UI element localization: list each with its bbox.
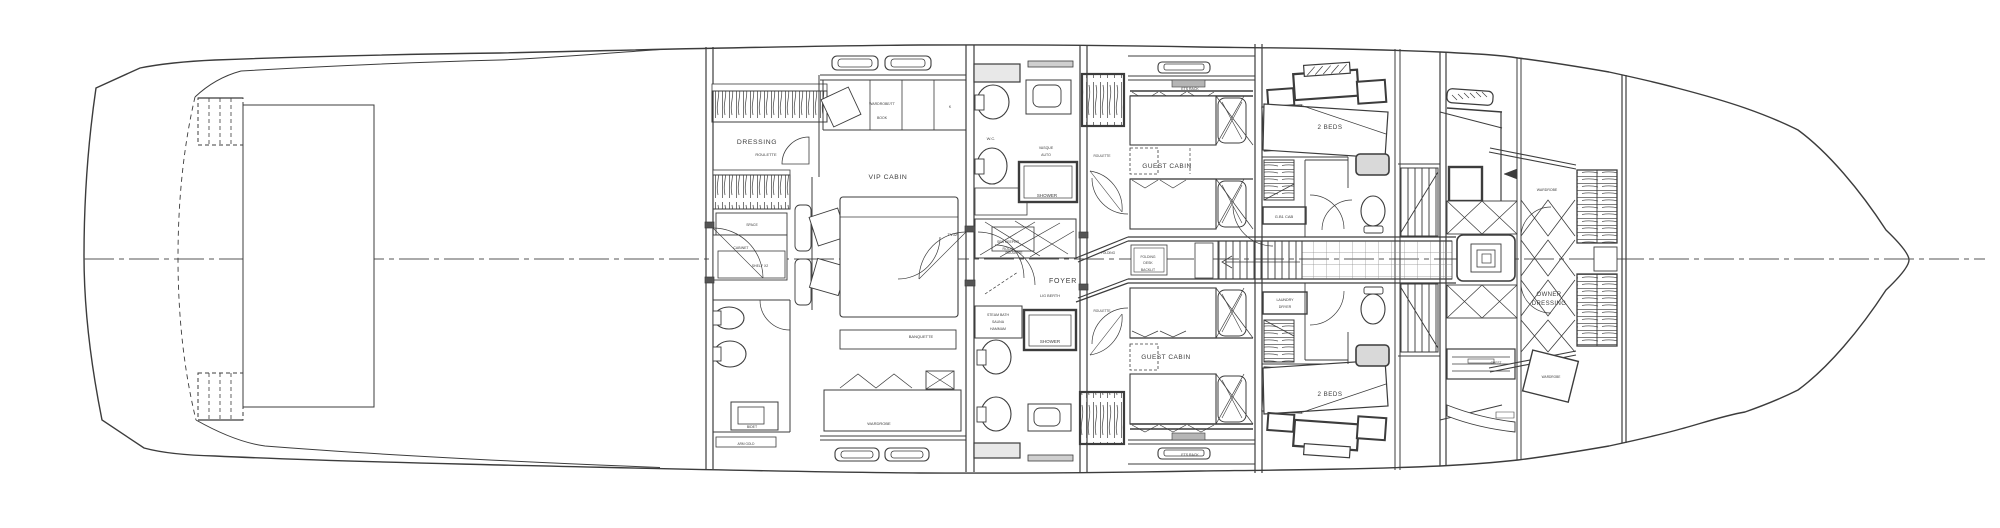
svg-text:FOLDING: FOLDING xyxy=(1140,255,1155,259)
svg-text:WARDROBE/TT: WARDROBE/TT xyxy=(869,102,896,106)
svg-text:FOYER: FOYER xyxy=(1049,278,1077,285)
svg-text:VIP CABIN: VIP CABIN xyxy=(869,174,908,181)
svg-text:STEAM BATH: STEAM BATH xyxy=(987,313,1010,317)
svg-text:ROULETTE: ROULETTE xyxy=(1005,251,1022,255)
svg-text:SPACE: SPACE xyxy=(746,223,758,227)
svg-text:GUEST CABIN: GUEST CABIN xyxy=(1141,354,1190,361)
svg-text:SHOWER: SHOWER xyxy=(1037,193,1058,198)
svg-text:SEA KEEPER: SEA KEEPER xyxy=(997,240,1019,244)
svg-text:BIDET: BIDET xyxy=(747,425,758,429)
svg-text:WARDROBE: WARDROBE xyxy=(867,421,891,426)
svg-text:DRESSING: DRESSING xyxy=(1532,301,1567,307)
svg-text:SAUNA: SAUNA xyxy=(992,320,1005,324)
svg-text:BANQUETTE: BANQUETTE xyxy=(909,334,934,339)
svg-text:HAMMAM: HAMMAM xyxy=(990,327,1006,331)
svg-text:BACKLIT: BACKLIT xyxy=(1141,268,1155,272)
svg-text:WARDROBE: WARDROBE xyxy=(1537,188,1558,192)
svg-text:LIG BERTH: LIG BERTH xyxy=(1040,294,1060,298)
svg-text:SHOWER: SHOWER xyxy=(1040,339,1061,344)
svg-text:CABINET: CABINET xyxy=(733,246,749,250)
svg-text:W.C.: W.C. xyxy=(987,136,996,141)
svg-text:WARDROBE: WARDROBE xyxy=(1542,375,1561,379)
svg-text:ROULETTE: ROULETTE xyxy=(1093,309,1110,313)
svg-text:2 BEDS: 2 BEDS xyxy=(1317,124,1342,131)
svg-text:OWNER: OWNER xyxy=(1537,292,1562,298)
svg-text:ETS RACK: ETS RACK xyxy=(1181,87,1199,91)
svg-text:LAUNDRY: LAUNDRY xyxy=(1276,298,1294,302)
svg-text:AUTO: AUTO xyxy=(1041,153,1051,157)
svg-text:ETS RACK: ETS RACK xyxy=(1181,453,1199,457)
svg-text:SHELF X2: SHELF X2 xyxy=(752,264,769,268)
svg-text:GUEST CABIN: GUEST CABIN xyxy=(1142,163,1191,170)
svg-text:2 BEDS: 2 BEDS xyxy=(1317,391,1342,398)
svg-text:ROULETTE: ROULETTE xyxy=(1093,154,1110,158)
svg-text:TV32": TV32" xyxy=(948,232,960,237)
svg-text:DRESSING: DRESSING xyxy=(737,139,777,146)
svg-text:DESK: DESK xyxy=(1143,261,1153,265)
svg-text:K: K xyxy=(949,105,952,109)
svg-text:ROULETTE: ROULETTE xyxy=(755,152,777,157)
svg-text:ARM GOLD: ARM GOLD xyxy=(737,442,755,446)
svg-text:BOOK: BOOK xyxy=(877,116,888,120)
svg-text:CHEST: CHEST xyxy=(1491,361,1502,365)
svg-text:FOLDING: FOLDING xyxy=(1101,251,1116,255)
svg-text:VASQUE: VASQUE xyxy=(1039,146,1054,150)
svg-text:G.B1 CAB: G.B1 CAB xyxy=(1275,214,1294,219)
svg-text:DRYER: DRYER xyxy=(1279,305,1292,309)
